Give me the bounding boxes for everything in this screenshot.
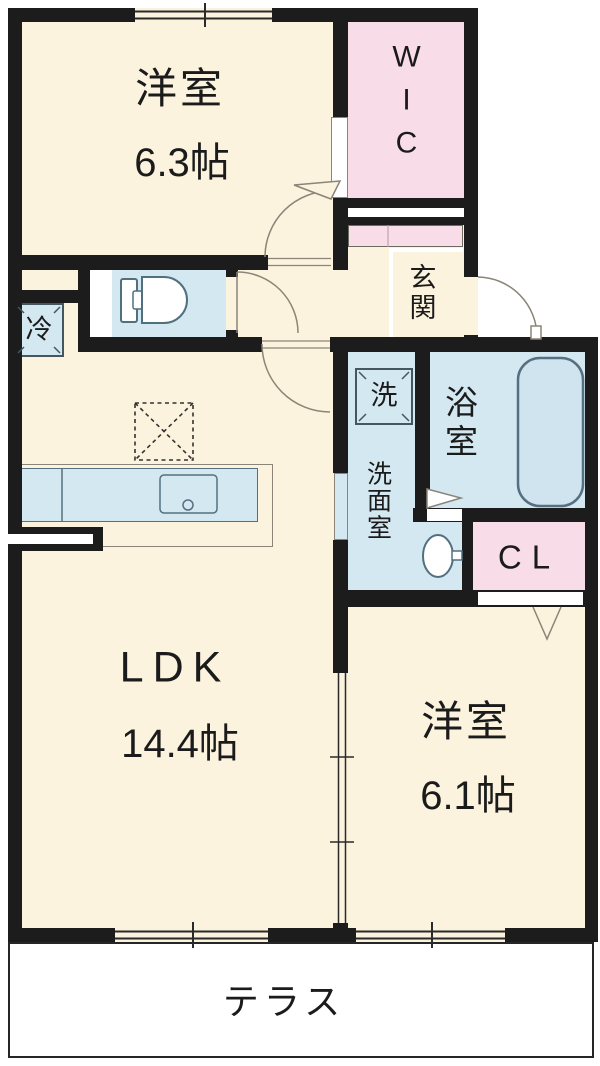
floor-plan-page: { "plan": { "rooms": { "bedroom_main": {… bbox=[0, 0, 600, 1066]
bedroom-door-arc bbox=[265, 181, 340, 257]
range-hood-icon bbox=[135, 403, 193, 460]
bath-folding-door-icon bbox=[427, 489, 461, 508]
plan-graphics bbox=[0, 0, 600, 1066]
kitchen-sink-icon bbox=[62, 468, 217, 521]
window-ldk bbox=[115, 922, 268, 948]
terrace-label: テラス bbox=[223, 984, 345, 1020]
ldk-size: 14.4帖 bbox=[121, 724, 239, 764]
window-top bbox=[135, 3, 272, 27]
toilet-door-arc bbox=[237, 272, 298, 333]
wic-label: WIC bbox=[391, 41, 421, 170]
toilet-icon bbox=[121, 277, 187, 323]
closet-folding-door-icon bbox=[533, 607, 561, 639]
window-bedroom2 bbox=[356, 922, 505, 948]
washbasin-icon bbox=[423, 535, 462, 577]
bedroom1-size: 6.3帖 bbox=[134, 143, 230, 183]
bedroom2-size: 6.1帖 bbox=[420, 776, 516, 816]
closet-label: CL bbox=[498, 541, 560, 574]
bathtub-icon bbox=[518, 358, 583, 506]
bedroom2-name: 洋室 bbox=[421, 701, 511, 743]
washer-label: 洗 bbox=[371, 383, 398, 410]
entrance-door-arc bbox=[478, 277, 541, 339]
bathroom-label: 浴室 bbox=[443, 385, 476, 463]
ldk-door-arc bbox=[262, 344, 330, 412]
fridge-label: 冷 bbox=[26, 317, 53, 344]
ldk-name: LDK bbox=[120, 647, 231, 690]
genkan-label: 玄関 bbox=[407, 263, 434, 323]
washroom-label: 洗面室 bbox=[365, 461, 390, 542]
bedroom1-name: 洋室 bbox=[135, 68, 225, 110]
door-sill-lines bbox=[262, 259, 331, 349]
sliding-partition bbox=[330, 673, 354, 923]
